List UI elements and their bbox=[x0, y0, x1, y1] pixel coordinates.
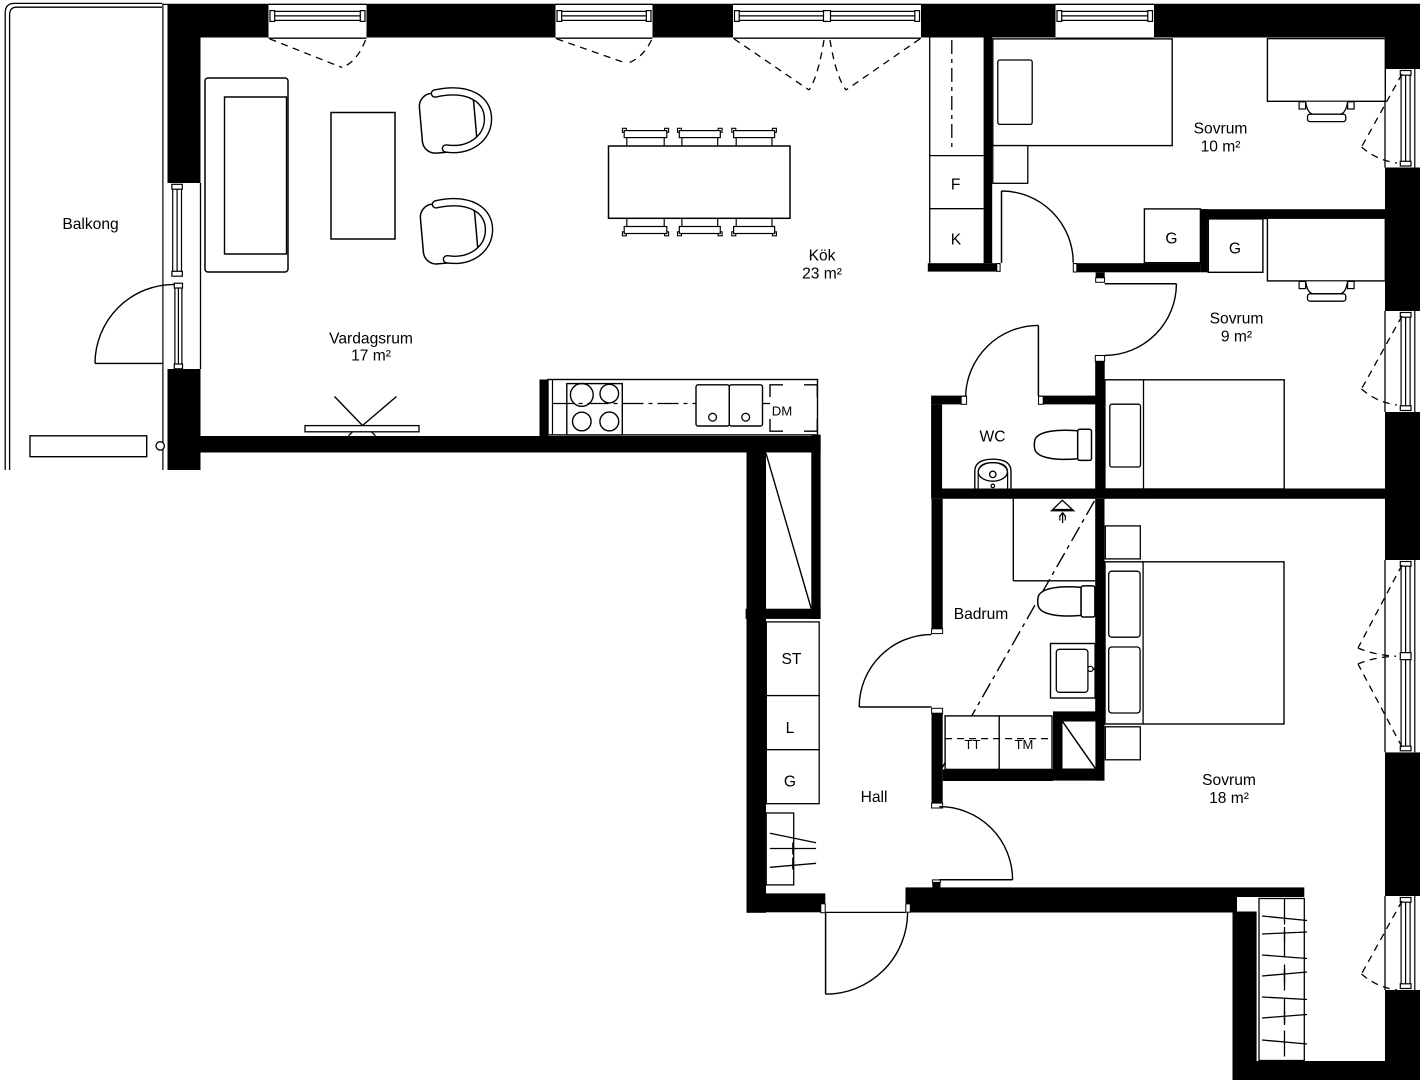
svg-text:10 m²: 10 m² bbox=[1201, 139, 1241, 156]
svg-text:Hall: Hall bbox=[861, 789, 888, 806]
svg-text:17 m²: 17 m² bbox=[351, 348, 391, 365]
svg-text:9 m²: 9 m² bbox=[1221, 329, 1252, 346]
svg-text:18 m²: 18 m² bbox=[1209, 790, 1249, 807]
svg-text:G: G bbox=[784, 774, 796, 791]
svg-text:Sovrum: Sovrum bbox=[1210, 311, 1264, 328]
svg-text:Sovrum: Sovrum bbox=[1202, 772, 1256, 789]
svg-text:Kök: Kök bbox=[809, 248, 836, 265]
svg-text:TM: TM bbox=[1015, 737, 1034, 752]
svg-text:Vardagsrum: Vardagsrum bbox=[329, 331, 413, 348]
svg-text:G: G bbox=[1165, 231, 1177, 248]
svg-text:K: K bbox=[951, 231, 962, 248]
svg-text:G: G bbox=[1229, 241, 1241, 258]
svg-text:ST: ST bbox=[782, 651, 802, 668]
svg-text:DM: DM bbox=[772, 403, 793, 418]
svg-text:WC: WC bbox=[980, 428, 1006, 445]
svg-text:TT: TT bbox=[965, 737, 981, 752]
svg-text:23 m²: 23 m² bbox=[802, 266, 842, 283]
svg-text:Badrum: Badrum bbox=[954, 606, 1009, 623]
svg-text:Sovrum: Sovrum bbox=[1194, 121, 1248, 138]
svg-text:F: F bbox=[951, 177, 961, 194]
svg-text:L: L bbox=[786, 720, 795, 737]
svg-text:Balkong: Balkong bbox=[62, 216, 118, 233]
